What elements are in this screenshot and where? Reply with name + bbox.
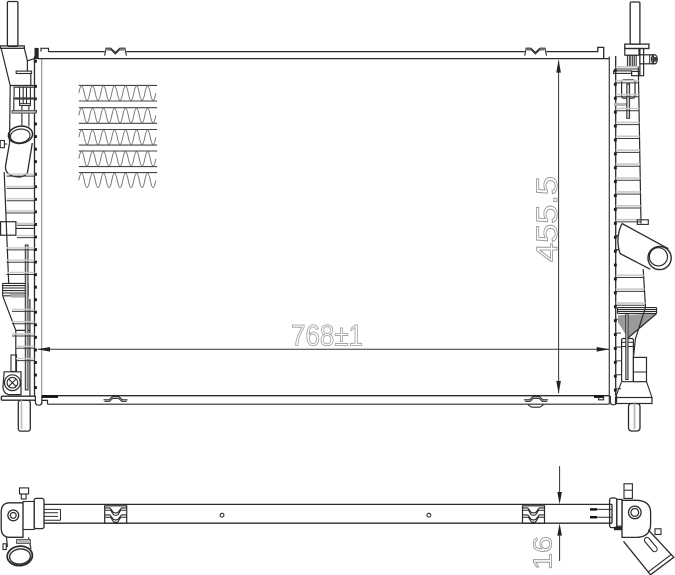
svg-text:768±1: 768±1 [291,320,363,353]
svg-text:455.5: 455.5 [531,176,564,262]
svg-text:16: 16 [528,536,558,570]
